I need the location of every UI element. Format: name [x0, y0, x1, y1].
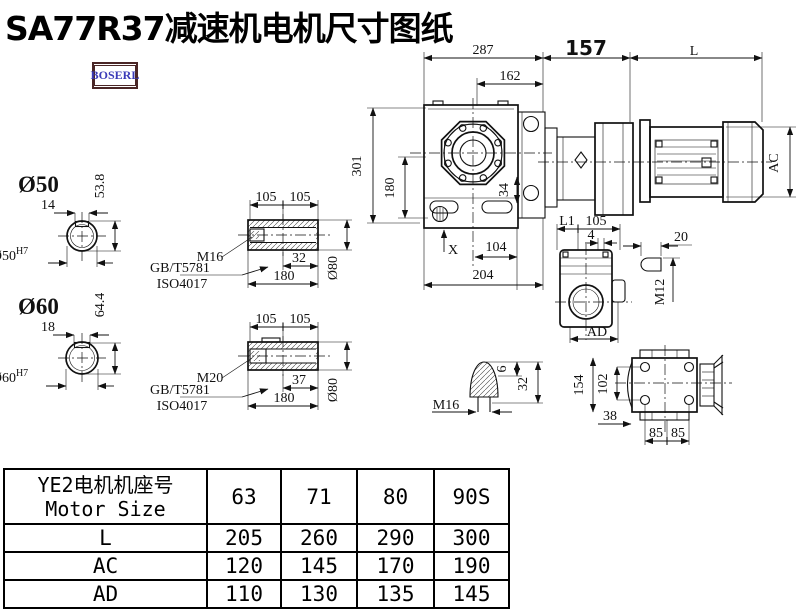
row-label: AD	[4, 580, 207, 608]
dim-label: L1	[559, 214, 575, 229]
table-cell: 170	[357, 552, 434, 580]
table-cell: 135	[357, 580, 434, 608]
dim-label: 287	[473, 43, 494, 58]
dim-label: 14	[41, 198, 55, 213]
dim-label: Ø50H7	[0, 246, 28, 264]
dim-label: 37	[292, 373, 306, 388]
table-header-row: YE2电机机座号 Motor Size 63 71 80 90S	[4, 469, 509, 524]
dim-label: 4	[588, 228, 595, 243]
table-header-cell: YE2电机机座号 Motor Size	[4, 469, 207, 524]
gearmotor-aux-view: L1 105 4 AD	[555, 214, 632, 343]
dim-label: 34	[497, 183, 512, 197]
table-cell: 145	[281, 552, 357, 580]
dim-label: 180	[274, 269, 295, 284]
dim-label: Ø60H7	[0, 368, 28, 386]
column-header: 71	[281, 469, 357, 524]
standard-label: ISO4017	[157, 277, 208, 292]
dim-label: 105	[586, 214, 607, 229]
dim-label: 53.8	[93, 174, 108, 199]
dim-label: 20	[674, 230, 688, 245]
dim-label: 18	[41, 320, 55, 335]
gearbox-front-view: 301 180 34 X 104 204	[350, 98, 552, 290]
shaft-end-view-50: Ø50 14 53.8 Ø50H7	[0, 172, 121, 267]
view-title: Ø60	[18, 294, 59, 319]
dim-label: 204	[473, 268, 494, 283]
column-header: 90S	[434, 469, 509, 524]
dim-label: 157	[565, 36, 607, 60]
view-title: Ø50	[18, 172, 59, 197]
dim-label: 180	[383, 178, 398, 199]
table-cell: 120	[207, 552, 281, 580]
dim-label: Ø80	[326, 256, 341, 280]
dim-label: 32	[292, 251, 306, 266]
dim-label: AD	[587, 325, 607, 340]
drawing-sheet: SA77R37减速机电机尺寸图纸 BOSERL 287 162	[0, 0, 800, 613]
dim-label: 301	[350, 156, 365, 177]
motor-side-view: AC	[538, 120, 796, 215]
plug-detail: 20 M12	[623, 230, 692, 305]
dim-label: 64.4	[93, 293, 108, 318]
bushing-detail-2: 105 105 37 180 Ø80 M20 GB/T5781	[150, 312, 352, 414]
motor-size-label-en: Motor Size	[5, 497, 206, 521]
gearbox-top-view: 154 102 38 85 85	[572, 345, 732, 445]
table-row: AD 110 130 135 145	[4, 580, 509, 608]
table-cell: 190	[434, 552, 509, 580]
dim-label: AC	[767, 153, 782, 172]
shaft-end-view-60: Ø60 18 64.4 Ø60H7	[0, 293, 121, 390]
table-cell: 205	[207, 524, 281, 552]
table-cell: 300	[434, 524, 509, 552]
dim-label: 85	[649, 426, 663, 441]
table-cell: 260	[281, 524, 357, 552]
dim-label: 38	[603, 409, 617, 424]
row-label: AC	[4, 552, 207, 580]
standard-label: GB/T5781	[150, 383, 210, 398]
table-cell: 145	[434, 580, 509, 608]
dim-label: 104	[486, 240, 507, 255]
dim-label: 105	[256, 312, 277, 327]
dim-label: 6	[495, 366, 510, 373]
column-header: 80	[357, 469, 434, 524]
row-label: L	[4, 524, 207, 552]
bushing-detail-1: 105 105 32 180 Ø80 M16 GB/T5781	[150, 190, 352, 292]
thread-label: M16	[433, 398, 459, 413]
dim-label: 154	[572, 375, 587, 396]
standard-label: ISO4017	[157, 399, 208, 414]
dim-label: 85	[671, 426, 685, 441]
dimension-table: YE2电机机座号 Motor Size 63 71 80 90S L 205 2…	[3, 468, 510, 609]
motor-size-label-cn: YE2电机机座号	[5, 473, 206, 497]
dim-label: 105	[290, 190, 311, 205]
column-header: 63	[207, 469, 281, 524]
dim-label: X	[448, 243, 458, 258]
table-cell: 110	[207, 580, 281, 608]
table-cell: 290	[357, 524, 434, 552]
dim-label: 32	[516, 377, 531, 391]
dim-label: 105	[256, 190, 277, 205]
dim-label: L	[690, 44, 699, 59]
dim-label: Ø80	[326, 378, 341, 402]
dim-label: 102	[596, 374, 611, 395]
table-cell: 130	[281, 580, 357, 608]
dim-label: 180	[274, 391, 295, 406]
standard-label: GB/T5781	[150, 261, 210, 276]
dim-label: M12	[653, 279, 668, 305]
dim-label: 105	[290, 312, 311, 327]
table-row: AC 120 145 170 190	[4, 552, 509, 580]
dim-label: 162	[500, 69, 521, 84]
cone-plug-detail: M16 6 32	[432, 362, 543, 413]
table-row: L 205 260 290 300	[4, 524, 509, 552]
